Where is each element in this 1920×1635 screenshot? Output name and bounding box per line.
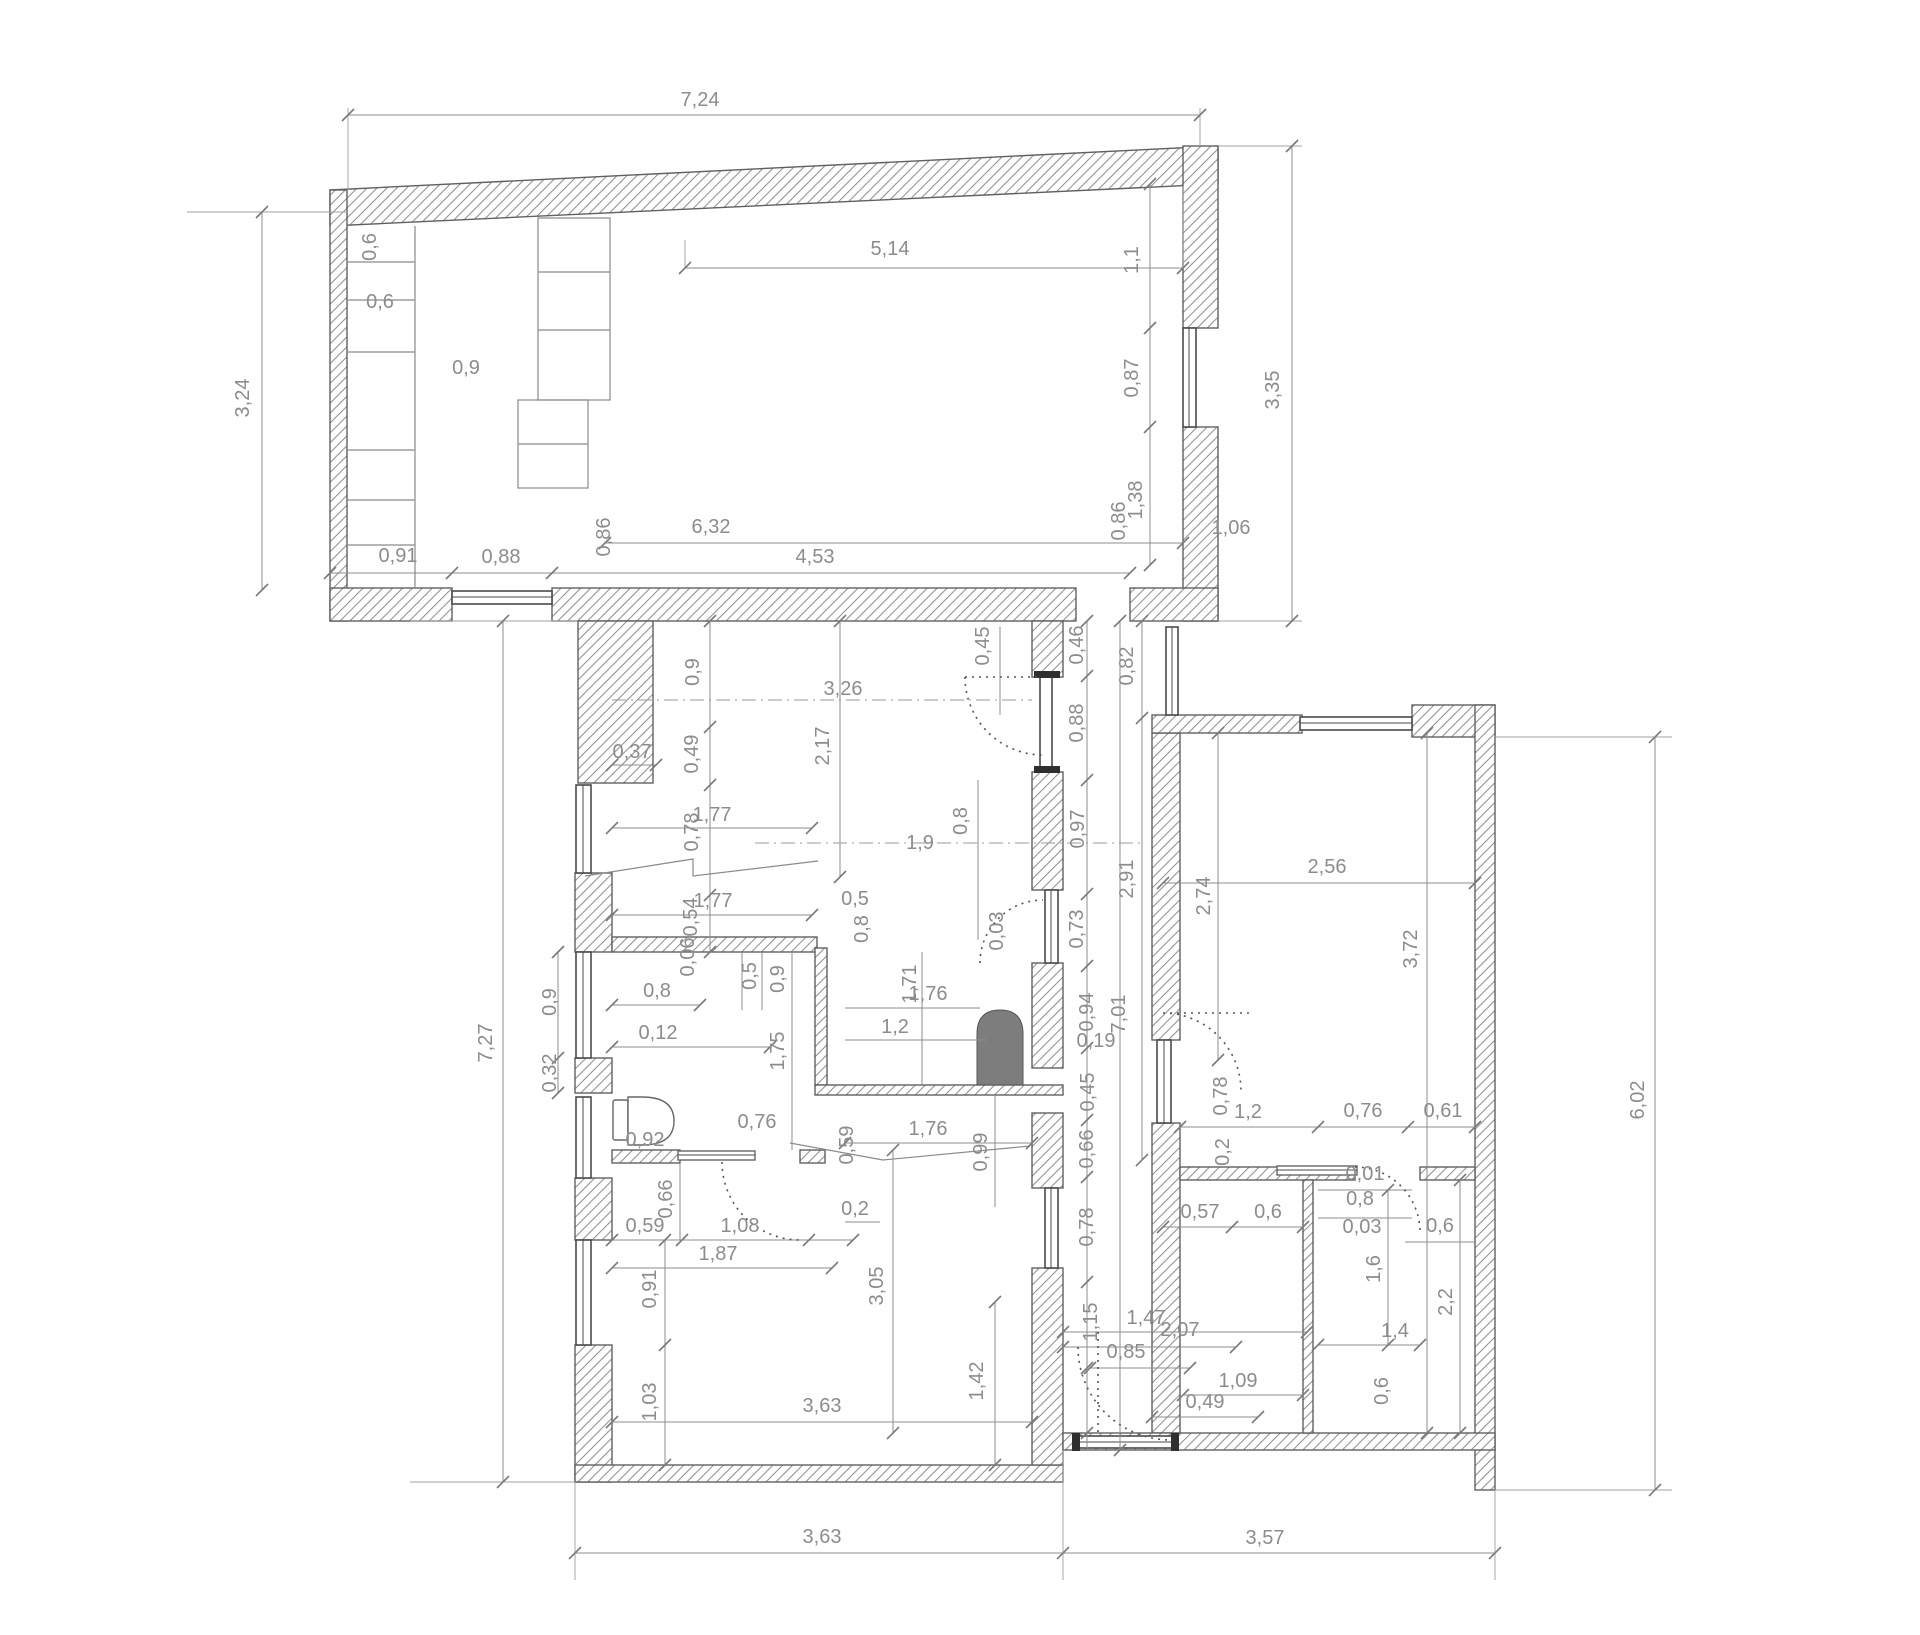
radiator-icon — [678, 1151, 755, 1160]
toilet-icon — [613, 1097, 674, 1145]
furniture-layer — [347, 218, 1357, 1175]
door-swing-icon — [980, 900, 1043, 963]
wall-top-sloped — [330, 146, 1218, 226]
floor-plan-drawing — [0, 0, 1920, 1635]
break-line — [585, 859, 818, 876]
cabinet-row — [347, 218, 610, 588]
door-swing-icon — [965, 677, 1043, 755]
door-leaf-icon — [1040, 677, 1052, 772]
stove-icon — [977, 1010, 1023, 1085]
break-line — [790, 1143, 1030, 1160]
floor-plan-canvas: 7,243,240,60,60,95,141,10,871,380,861,06… — [0, 0, 1920, 1635]
dimension-lines-layer — [187, 108, 1672, 1580]
walls-layer — [330, 146, 1495, 1490]
radiator-icon — [1277, 1166, 1357, 1175]
door-swing-icon — [722, 1162, 800, 1240]
